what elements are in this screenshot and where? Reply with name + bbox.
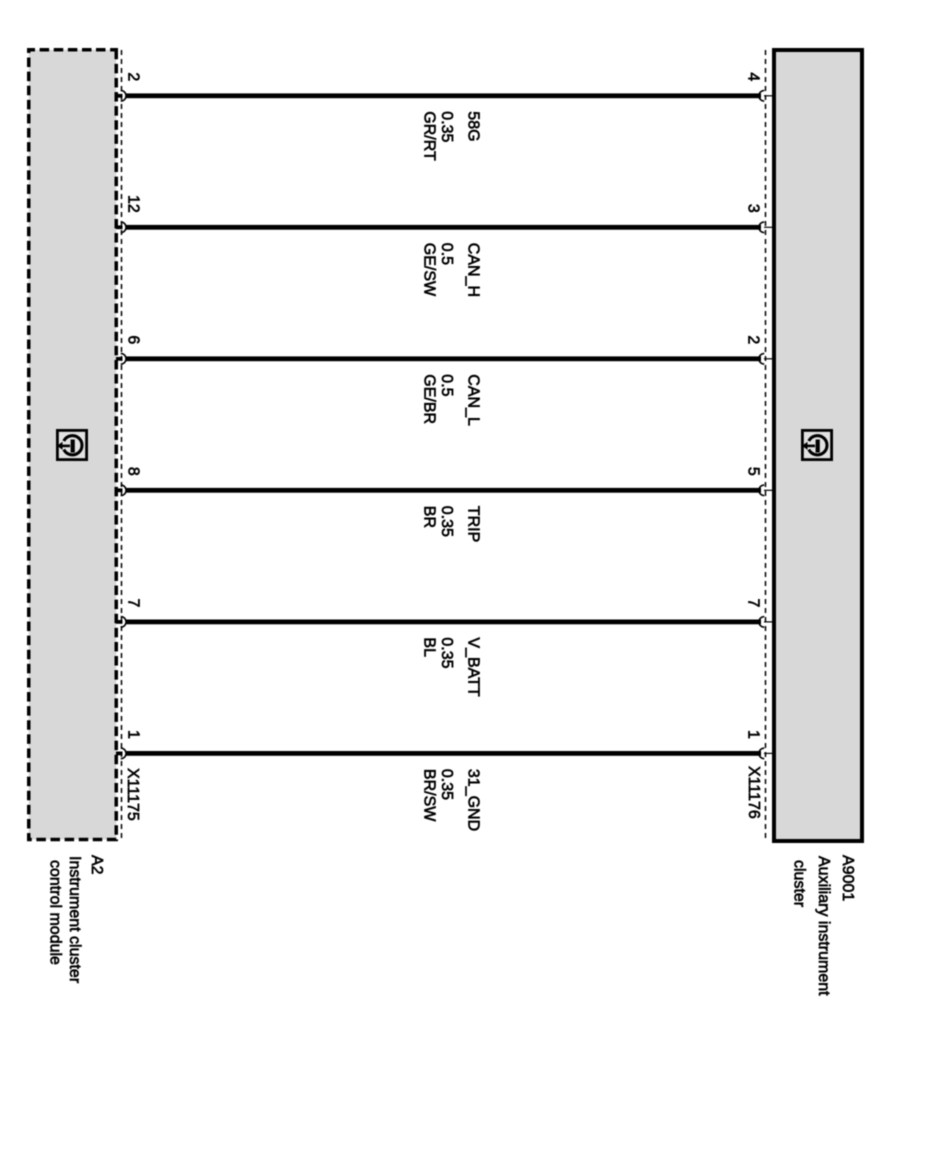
svg-text:2: 2 xyxy=(125,72,142,81)
svg-text:A2: A2 xyxy=(88,855,105,875)
svg-text:2: 2 xyxy=(745,335,762,344)
svg-text:GE/SW: GE/SW xyxy=(420,243,437,297)
svg-text:0.5: 0.5 xyxy=(438,243,455,265)
svg-text:6: 6 xyxy=(125,335,142,344)
svg-text:TRIP: TRIP xyxy=(465,506,482,542)
svg-text:0.35: 0.35 xyxy=(438,637,455,668)
svg-text:Instrument cluster: Instrument cluster xyxy=(66,856,83,984)
svg-text:CAN_L: CAN_L xyxy=(465,374,482,426)
svg-text:0.35: 0.35 xyxy=(438,506,455,537)
svg-text:4: 4 xyxy=(745,72,762,81)
svg-text:cluster: cluster xyxy=(791,860,808,908)
svg-text:5: 5 xyxy=(745,467,762,476)
svg-text:BR/SW: BR/SW xyxy=(420,769,437,822)
svg-text:X11175: X11175 xyxy=(124,768,141,821)
svg-text:BR: BR xyxy=(420,506,437,528)
svg-text:7: 7 xyxy=(745,598,762,607)
svg-text:BL: BL xyxy=(420,637,437,657)
svg-text:12: 12 xyxy=(125,195,142,213)
svg-text:X11176: X11176 xyxy=(745,766,762,819)
svg-text:58G: 58G xyxy=(465,111,482,141)
svg-text:8: 8 xyxy=(125,467,142,476)
svg-text:GR/RT: GR/RT xyxy=(420,111,437,161)
svg-text:A9001: A9001 xyxy=(839,855,856,901)
svg-text:3: 3 xyxy=(745,204,762,213)
svg-text:31_GND: 31_GND xyxy=(465,769,482,831)
svg-text:V_BATT: V_BATT xyxy=(465,637,482,697)
svg-text:0.35: 0.35 xyxy=(438,111,455,142)
svg-text:CAN_H: CAN_H xyxy=(465,243,482,297)
svg-text:0.5: 0.5 xyxy=(438,374,455,396)
svg-text:GE/BR: GE/BR xyxy=(420,374,437,424)
svg-text:1: 1 xyxy=(745,730,762,739)
svg-text:Auxiliary instrument: Auxiliary instrument xyxy=(815,856,832,996)
svg-text:1: 1 xyxy=(125,730,142,739)
svg-text:control module: control module xyxy=(47,860,64,965)
svg-text:0.35: 0.35 xyxy=(438,769,455,800)
svg-text:7: 7 xyxy=(125,598,142,607)
